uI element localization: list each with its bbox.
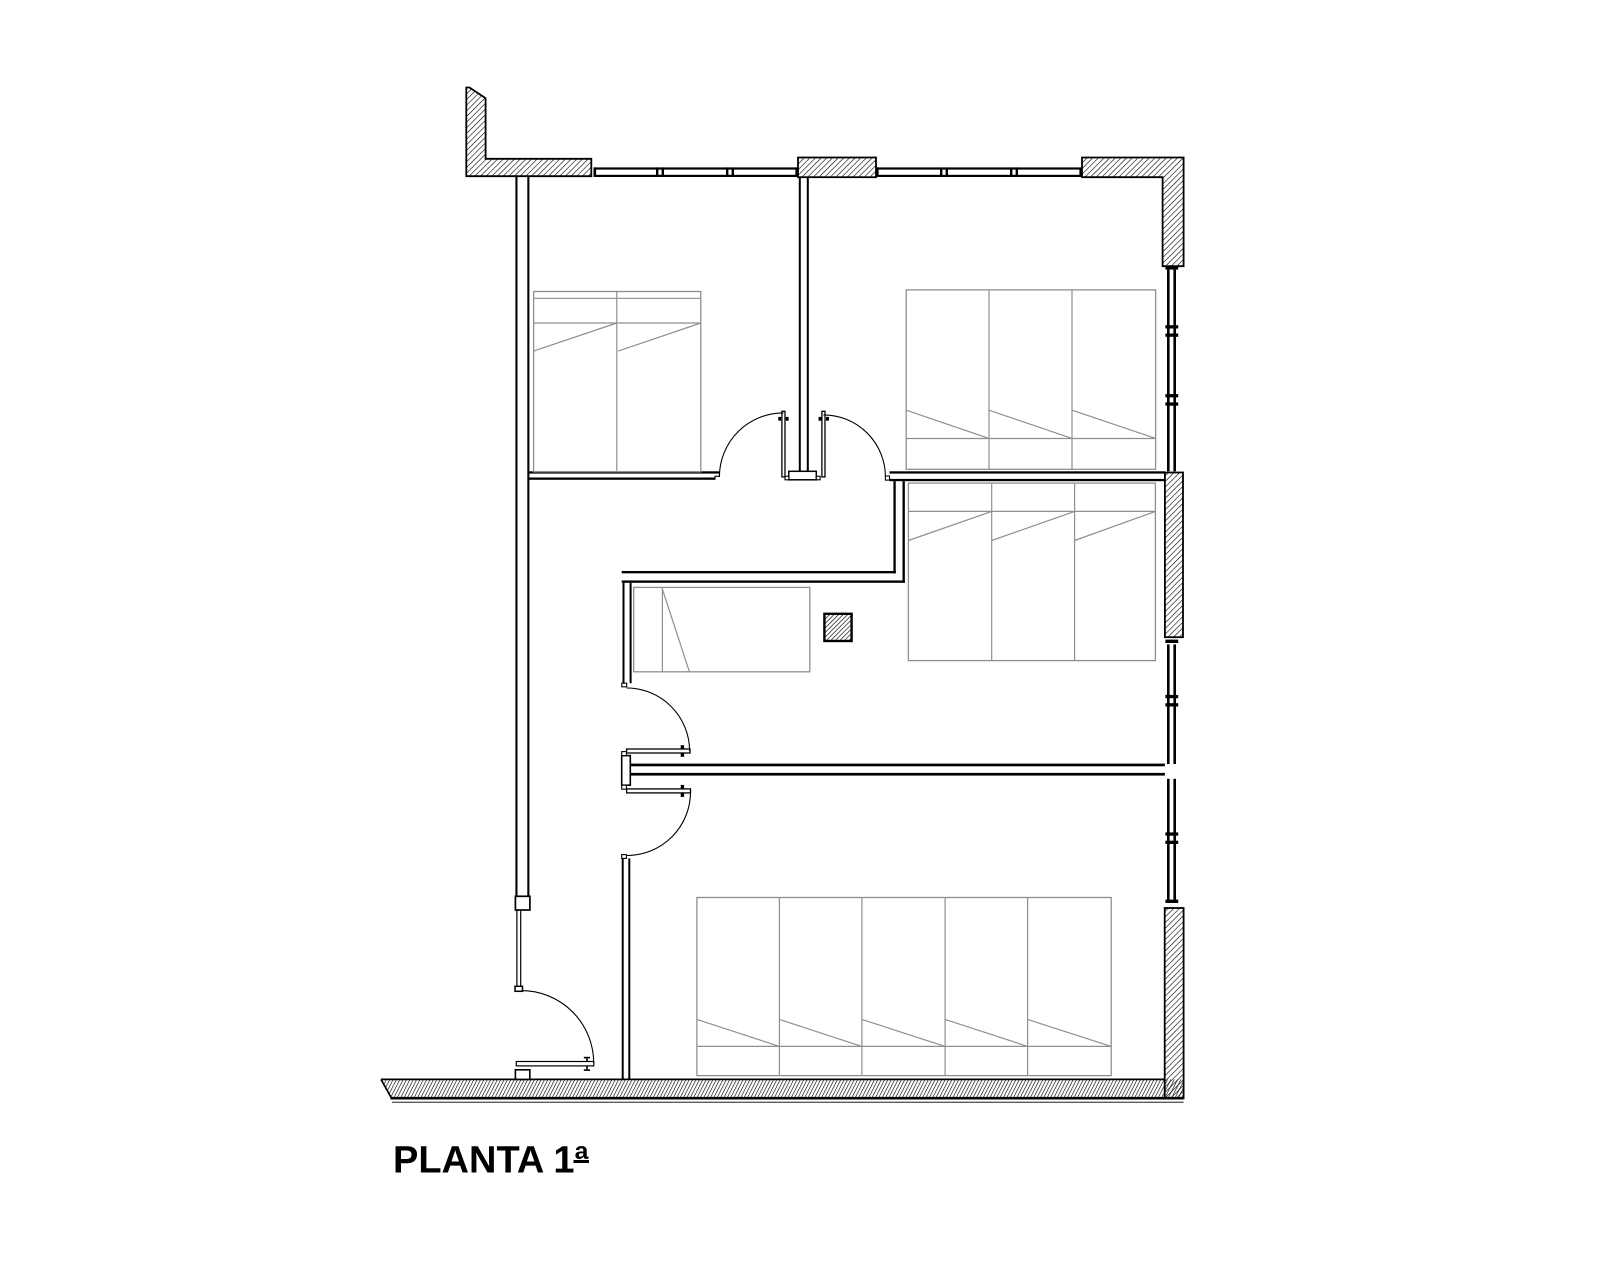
svg-text:PLANTA 1ª: PLANTA 1ª xyxy=(393,1140,590,1182)
